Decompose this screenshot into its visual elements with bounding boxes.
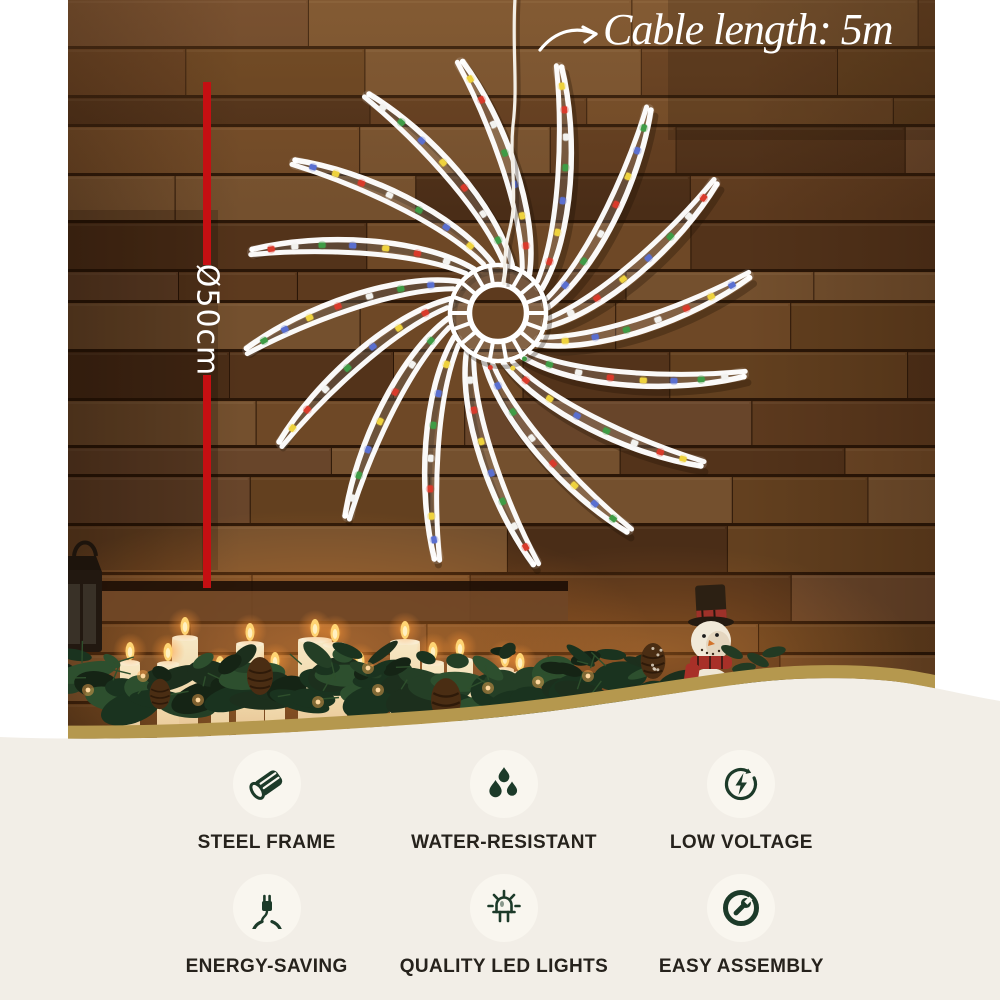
feature-label: LOW VOLTAGE	[670, 832, 813, 854]
water-resistant-icon	[483, 763, 525, 805]
feature-label: ENERGY-SAVING	[186, 956, 348, 978]
feature-label: EASY ASSEMBLY	[659, 956, 824, 978]
feature-energy-saving: ENERGY-SAVING	[148, 874, 385, 980]
feature-low-voltage: LOW VOLTAGE	[623, 750, 860, 856]
feature-steel-frame: STEEL FRAME	[148, 750, 385, 856]
easy-assembly-icon	[720, 887, 762, 929]
low-voltage-icon	[720, 763, 762, 805]
energy-saving-icon	[246, 887, 288, 929]
diameter-dimension-line-bottom	[203, 375, 211, 588]
feature-easy-assembly: EASY ASSEMBLY	[623, 874, 860, 980]
quality-led-lights-icon	[483, 887, 525, 929]
diameter-label: Ø50cm	[190, 264, 225, 377]
feature-label: STEEL FRAME	[198, 832, 336, 854]
diameter-dimension-line-top	[203, 82, 211, 265]
product-infographic: Ø50cm Cable length: 5m	[0, 0, 1000, 1000]
features-row-1: STEEL FRAME WATER-RESISTANT	[148, 750, 860, 856]
cable-length-note: Cable length: 5m	[603, 4, 893, 55]
feature-label: WATER-RESISTANT	[411, 832, 597, 854]
feature-quality-led-lights: QUALITY LED LIGHTS	[385, 874, 622, 980]
features-grid: STEEL FRAME WATER-RESISTANT	[148, 750, 860, 998]
steel-frame-icon	[246, 763, 288, 805]
feature-label: QUALITY LED LIGHTS	[400, 956, 608, 978]
cable-note-arrow-icon	[536, 20, 606, 60]
feature-water-resistant: WATER-RESISTANT	[385, 750, 622, 856]
features-row-2: ENERGY-SAVING QUALITY LED LIGHTS	[148, 874, 860, 980]
